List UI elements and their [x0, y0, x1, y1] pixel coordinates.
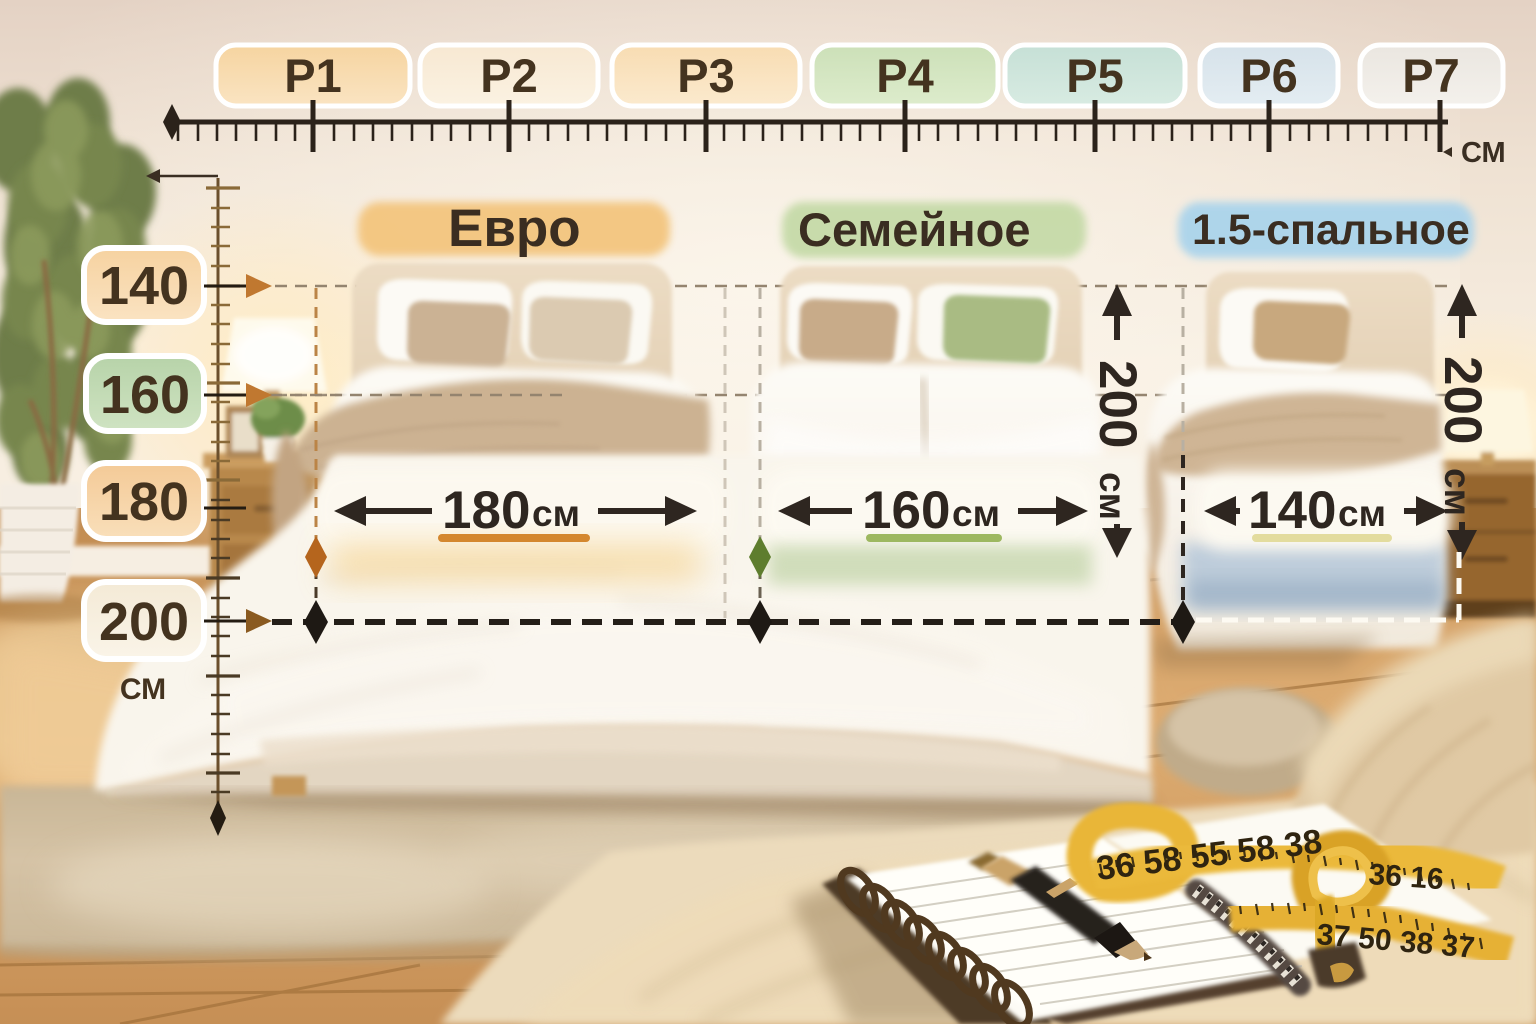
svg-text:Семейное: Семейное: [798, 203, 1031, 256]
svg-text:160: 160: [862, 481, 950, 540]
svg-text:200: 200: [99, 592, 189, 652]
svg-text:P1: P1: [284, 49, 342, 102]
svg-text:200: 200: [1088, 360, 1147, 448]
svg-text:140: 140: [1248, 481, 1336, 540]
svg-text:36 16: 36 16: [1368, 858, 1445, 896]
svg-text:P2: P2: [480, 49, 538, 102]
svg-text:P6: P6: [1240, 49, 1298, 102]
svg-text:см: см: [1437, 468, 1478, 516]
svg-text:P5: P5: [1066, 49, 1124, 102]
svg-text:180: 180: [442, 481, 530, 540]
svg-text:160: 160: [100, 365, 190, 425]
svg-text:см: см: [1092, 472, 1133, 520]
svg-text:P7: P7: [1402, 49, 1460, 102]
svg-text:180: 180: [99, 472, 189, 532]
svg-text:1.5-спальное: 1.5-спальное: [1192, 206, 1470, 254]
svg-text:200: 200: [1433, 356, 1492, 444]
svg-text:P3: P3: [677, 49, 735, 102]
svg-text:Евро: Евро: [448, 199, 581, 258]
svg-text:см: см: [1338, 493, 1386, 534]
svg-text:см: см: [952, 493, 1000, 534]
svg-text:140: 140: [99, 256, 189, 316]
svg-text:СМ: СМ: [120, 673, 166, 706]
svg-text:P4: P4: [876, 49, 934, 102]
svg-text:СМ: СМ: [1461, 137, 1506, 169]
svg-text:см: см: [532, 493, 580, 534]
